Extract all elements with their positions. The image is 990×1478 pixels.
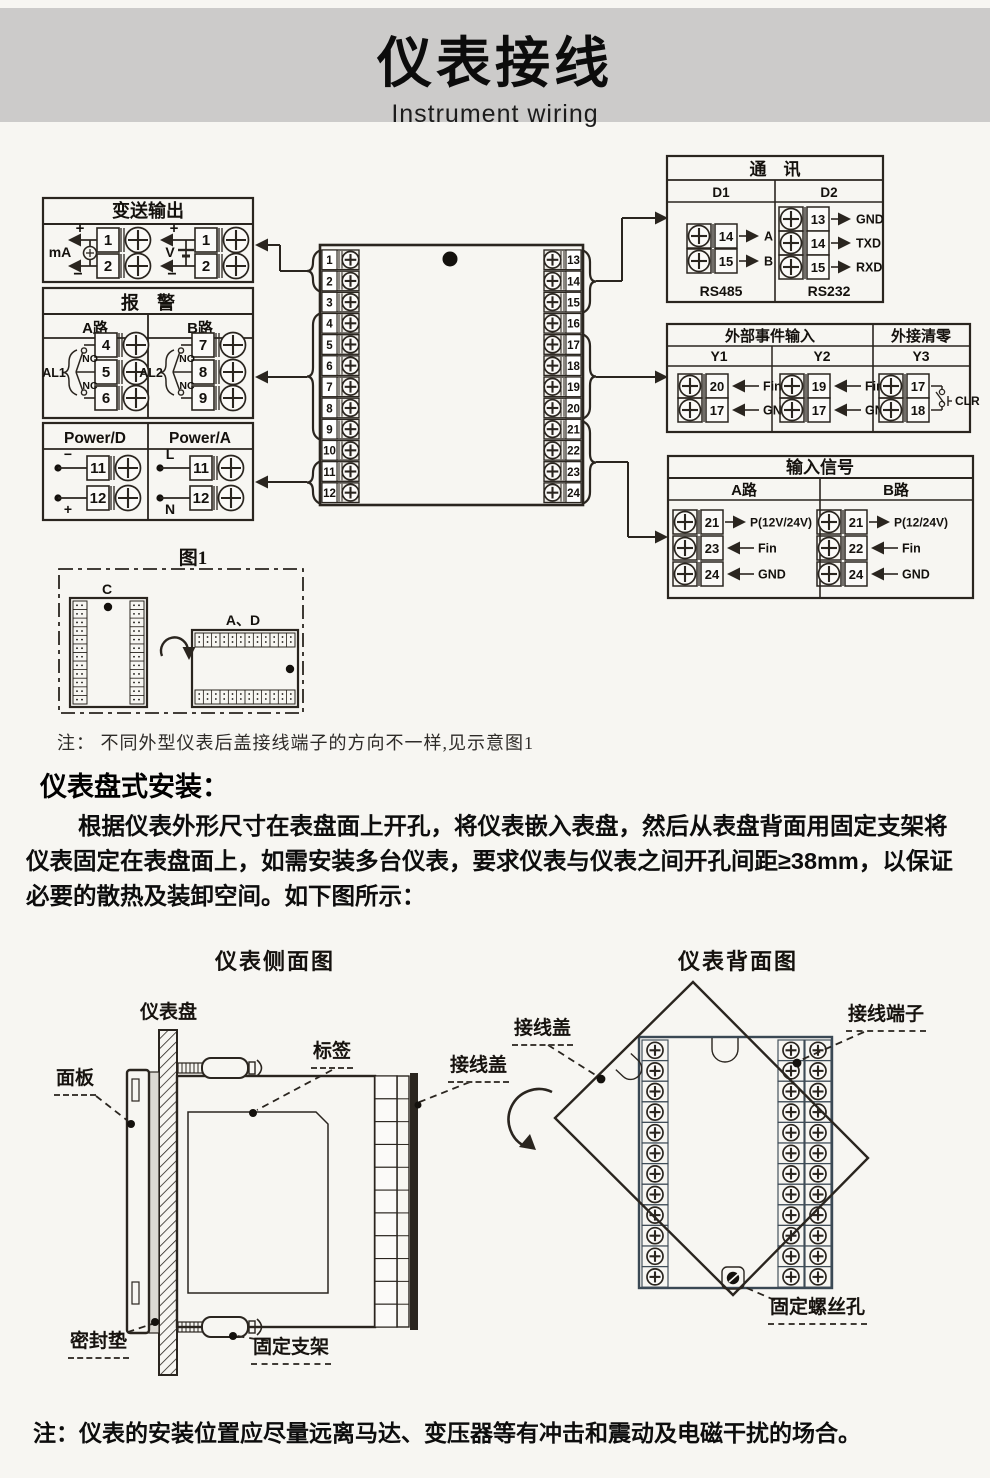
diagram-text: 12 bbox=[90, 490, 107, 507]
comm-box: 通 讯D114A15BRS485D213GND14TXD15RXDRS232 bbox=[667, 156, 884, 302]
alarm-channel: 789NONCAL2 bbox=[139, 333, 245, 411]
diagram-text: 5 bbox=[326, 340, 333, 352]
diagram-text: 10 bbox=[323, 446, 336, 458]
bottom-note: 注：仪表的安装位置应尽量远离马达、变压器等有冲击和震动及电磁干扰的场合。 bbox=[33, 1414, 861, 1448]
diagram-text: RS485 bbox=[700, 283, 743, 299]
diagram-text: 5 bbox=[102, 364, 110, 381]
side-view-drawing bbox=[96, 1030, 470, 1375]
side-view-heading: 仪表侧面图 bbox=[185, 944, 365, 976]
arrowhead bbox=[871, 542, 884, 555]
diagram-text: 2 bbox=[326, 276, 332, 288]
transmitter-group: mA+−12 bbox=[49, 220, 151, 283]
diagram-text: 11 bbox=[323, 467, 336, 479]
label-bracket: 固定支架 bbox=[251, 1338, 331, 1365]
diagram-text: 3 bbox=[326, 297, 332, 309]
diagram-text: D2 bbox=[820, 185, 837, 200]
header-band: 仪表接线 Instrument wiring bbox=[0, 8, 990, 122]
diagram-text: Y1 bbox=[710, 348, 727, 364]
event-input-box: 外部事件输入外接清零Y120Fin17GNDY219Fin17GNDY31718… bbox=[667, 324, 980, 432]
diagram-text: NO bbox=[82, 353, 98, 365]
transmitter-group: V+−12 bbox=[160, 220, 249, 283]
diagram-text: 1 bbox=[326, 255, 333, 267]
diagram-text: N bbox=[165, 501, 175, 517]
arrowhead bbox=[733, 516, 746, 529]
box-title: 通 讯 bbox=[750, 160, 801, 179]
diagram-text: 15 bbox=[719, 254, 733, 269]
box-title: 外接清零 bbox=[890, 327, 952, 345]
diagram-text: 19 bbox=[567, 382, 580, 394]
diagram-text: 24 bbox=[567, 488, 580, 500]
alarm-channel: 456NONCAL1 bbox=[42, 333, 148, 411]
arrowhead bbox=[727, 568, 740, 581]
diagram-text: 13 bbox=[567, 255, 580, 267]
diagram-text: GND bbox=[758, 568, 786, 582]
diagram-text: 7 bbox=[326, 382, 332, 394]
arrowhead bbox=[834, 380, 847, 393]
diagram-text: 21 bbox=[849, 515, 863, 530]
case-c: C bbox=[70, 581, 147, 707]
diagram-text: NC bbox=[82, 380, 98, 392]
diagram-text: 17 bbox=[911, 379, 925, 394]
diagram-text: 8 bbox=[326, 403, 333, 415]
diagram-text: P(12V/24V) bbox=[750, 516, 812, 530]
diagram-text: 1 bbox=[202, 232, 210, 249]
power-column: Power/A11L12N bbox=[156, 430, 243, 517]
manual-page: 仪表接线 Instrument wiring 变送输出mA+−12V+−12报 … bbox=[0, 0, 990, 1478]
transmitter-output-box: 变送输出mA+−12V+−12 bbox=[43, 198, 253, 283]
diagram-text: 2 bbox=[202, 258, 210, 275]
diagram-text: Fin bbox=[763, 380, 782, 394]
box-title: 报 警 bbox=[121, 292, 175, 313]
diagram-text: B bbox=[764, 255, 773, 269]
diagram-text: 21 bbox=[567, 424, 580, 436]
diagram-text: 15 bbox=[811, 260, 825, 275]
event-column: Y120Fin17GND bbox=[678, 348, 791, 422]
diagram-text: 24 bbox=[849, 567, 864, 582]
install-heading: 仪表盘式安装： bbox=[40, 765, 229, 804]
case-ad: A、D bbox=[192, 612, 298, 707]
diagram-text: 13 bbox=[811, 212, 825, 227]
event-column: Y219Fin17GND bbox=[780, 348, 893, 422]
diagram-text: 14 bbox=[567, 276, 580, 288]
diagram-text: + bbox=[170, 220, 179, 237]
diagram-text: Y2 bbox=[813, 348, 830, 364]
diagram-text: 17 bbox=[812, 403, 826, 418]
diagram-text: 14 bbox=[719, 229, 734, 244]
diagram-text: 18 bbox=[911, 403, 925, 418]
diagram-text: + bbox=[64, 501, 72, 517]
diagram-text: 20 bbox=[567, 403, 580, 415]
box-title: 变送输出 bbox=[112, 200, 184, 221]
box-title: 外部事件输入 bbox=[724, 327, 815, 345]
arrowhead bbox=[871, 568, 884, 581]
diagram-text: 2 bbox=[104, 258, 112, 275]
diagram-text: 8 bbox=[199, 364, 207, 381]
diagram-text: V bbox=[165, 244, 175, 260]
diagram-text: CLR bbox=[955, 394, 980, 408]
connector-wires bbox=[255, 212, 668, 544]
arrowhead bbox=[834, 404, 847, 417]
diagram-text: 20 bbox=[710, 379, 724, 394]
arrowhead bbox=[877, 516, 890, 529]
diagram-text: 24 bbox=[705, 567, 720, 582]
diagram-text: NO bbox=[179, 353, 195, 365]
diagram-text: A路 bbox=[731, 481, 758, 499]
input-signal-box: 输入信号A路21P(12V/24V)23Fin24GNDB路21P(12/24V… bbox=[668, 456, 973, 598]
label-front-panel: 面板 bbox=[54, 1069, 96, 1096]
diagram-text: Fin bbox=[902, 542, 921, 556]
diagram-text: 16 bbox=[567, 319, 580, 331]
arrowhead bbox=[838, 237, 851, 250]
diagram-text: GND bbox=[902, 568, 930, 582]
diagram-text: 15 bbox=[567, 297, 580, 309]
diagram-text: − bbox=[64, 446, 72, 462]
diagram-text: 4 bbox=[326, 319, 333, 331]
figure1: 图1CA、D bbox=[59, 547, 303, 713]
diagram-text: RXD bbox=[856, 261, 882, 275]
page-subtitle: Instrument wiring bbox=[0, 100, 990, 129]
arrowhead bbox=[838, 213, 851, 226]
diagram-text: 1 bbox=[104, 232, 112, 249]
diagram-text: Fin bbox=[758, 542, 777, 556]
power-column-title: Power/D bbox=[64, 430, 126, 447]
label-terminal-cover-side: 接线盖 bbox=[448, 1056, 509, 1083]
figure1-caption: 图1 bbox=[179, 547, 208, 569]
diagram-text: 11 bbox=[193, 460, 209, 477]
diagram-text: 18 bbox=[567, 361, 580, 373]
diagram-text: A、D bbox=[226, 612, 260, 628]
diagram-text: 23 bbox=[705, 541, 719, 556]
arrowhead bbox=[838, 261, 851, 274]
label-gasket: 密封垫 bbox=[68, 1332, 129, 1359]
page-title: 仪表接线 bbox=[0, 18, 990, 98]
arrowhead bbox=[732, 380, 745, 393]
arrowhead bbox=[732, 404, 745, 417]
box-title: 输入信号 bbox=[786, 457, 854, 477]
arrowhead bbox=[746, 230, 759, 243]
diagram-text: 9 bbox=[199, 390, 207, 407]
arrowhead bbox=[655, 531, 668, 544]
center-terminal-block: 113214315416517618719820921102211231224 bbox=[320, 245, 583, 505]
diagram-text: TXD bbox=[856, 237, 881, 251]
diagram-text: 17 bbox=[567, 340, 580, 352]
input-column: A路21P(12V/24V)23Fin24GND bbox=[673, 481, 812, 586]
diagram-text: A bbox=[764, 230, 773, 244]
install-paragraph: 根据仪表外形尺寸在表盘面上开孔，将仪表嵌入表盘，然后从表盘背面用固定支架将仪表固… bbox=[26, 809, 970, 914]
label-terminals: 接线端子 bbox=[846, 1005, 926, 1032]
diagram-text: 9 bbox=[326, 424, 332, 436]
diagram-text: 17 bbox=[710, 403, 724, 418]
diagram-text: C bbox=[102, 581, 112, 597]
diagram-text: AL2 bbox=[139, 366, 163, 380]
arrowhead bbox=[746, 255, 759, 268]
diagram-text: RS232 bbox=[808, 283, 851, 299]
diagram-text: 6 bbox=[326, 361, 332, 373]
label-panel-board: 仪表盘 bbox=[138, 1003, 199, 1028]
diagram-text: 23 bbox=[567, 467, 580, 479]
diagram-text: L bbox=[166, 446, 175, 462]
arrowhead bbox=[519, 1134, 536, 1150]
diagram-text: 11 bbox=[90, 460, 106, 477]
diagram-text: GND bbox=[856, 213, 884, 227]
diagram-text: mA bbox=[49, 244, 72, 260]
power-column: Power/D11−12+ bbox=[54, 430, 140, 517]
diagram-text: 22 bbox=[567, 446, 580, 458]
alarm-box: 报 警A路B路456NONCAL1789NONCAL2 bbox=[42, 288, 253, 418]
arrowhead bbox=[183, 647, 196, 660]
diagram-text: 21 bbox=[705, 515, 719, 530]
diagram-text: 12 bbox=[323, 488, 336, 500]
back-view-heading: 仪表背面图 bbox=[648, 944, 828, 976]
diagram-text: 12 bbox=[193, 490, 210, 507]
diagram-text: Y3 bbox=[912, 348, 929, 364]
label-terminal-cover-back: 接线盖 bbox=[512, 1019, 573, 1046]
diagram-text: 22 bbox=[849, 541, 863, 556]
diagram-text: 19 bbox=[812, 379, 826, 394]
power-box: Power/D11−12+Power/A11L12N bbox=[43, 423, 253, 520]
diagram-text: 6 bbox=[102, 390, 110, 407]
diagram-text: 14 bbox=[811, 236, 826, 251]
diagram-text: AL1 bbox=[42, 366, 66, 380]
arrowhead bbox=[727, 542, 740, 555]
event-column: Y31718CLR bbox=[879, 348, 980, 422]
diagram-text: NC bbox=[179, 380, 195, 392]
label-sticker: 标签 bbox=[311, 1042, 353, 1069]
diagram-text: 7 bbox=[199, 337, 207, 354]
diagram-text: 4 bbox=[102, 337, 111, 354]
power-column-title: Power/A bbox=[169, 430, 231, 447]
figure-note: 注： 不同外型仪表后盖接线端子的方向不一样,见示意图1 bbox=[57, 729, 534, 755]
input-column: B路21P(12/24V)22Fin24GND bbox=[817, 481, 948, 586]
diagram-text: P(12/24V) bbox=[894, 516, 948, 530]
diagram-text: B路 bbox=[883, 481, 910, 499]
diagram-text: D1 bbox=[712, 185, 730, 200]
label-screw-hole: 固定螺丝孔 bbox=[768, 1298, 867, 1325]
